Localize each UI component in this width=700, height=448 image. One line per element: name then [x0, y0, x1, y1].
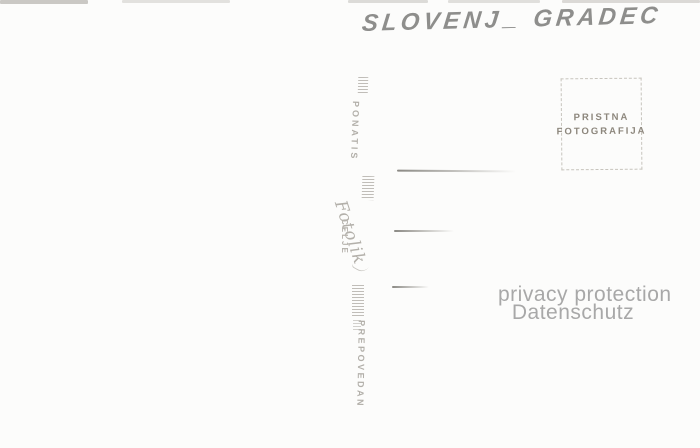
address-line: [392, 286, 429, 288]
handwritten-title: SLOVENJ_GRADEC: [360, 2, 663, 38]
publisher-logo-script: Fotolik: [330, 198, 370, 267]
authenticity-stamp-line2: FOTOGRAFIJA: [557, 125, 647, 137]
handwritten-word-slovenj: SLOVENJ: [361, 6, 504, 37]
address-line: [394, 230, 454, 232]
scan-edge-artifact: [348, 0, 428, 3]
publisher-city-label: CELJE: [340, 219, 349, 255]
publisher-stamp-word-top: PONATIS: [349, 101, 361, 162]
privacy-watermark: privacy protection Datenschutz: [498, 286, 648, 322]
authenticity-stamp-line1: PRISTNA: [574, 111, 630, 122]
publisher-stamp-word-bottom: PREPOVEDAN: [355, 320, 367, 408]
stamp-hatch-icon: [362, 176, 375, 200]
privacy-watermark-line2: Datenschutz: [498, 304, 648, 322]
handwritten-word-gradec: GRADEC: [532, 2, 663, 32]
address-line: [397, 170, 516, 173]
stamp-hatch-icon: [358, 77, 369, 94]
authenticity-stamp: PRISTNA FOTOGRAFIJA: [561, 78, 643, 171]
scan-edge-artifact: [122, 0, 230, 3]
scan-edge-artifact: [0, 0, 88, 4]
scan-edge-artifact: [448, 0, 540, 3]
handwritten-underscore: _: [503, 4, 524, 33]
stamp-hatch-icon: [352, 285, 364, 316]
postcard-back: SLOVENJ_GRADEC PONATIS Fotolik CELJE PRE…: [0, 0, 700, 448]
